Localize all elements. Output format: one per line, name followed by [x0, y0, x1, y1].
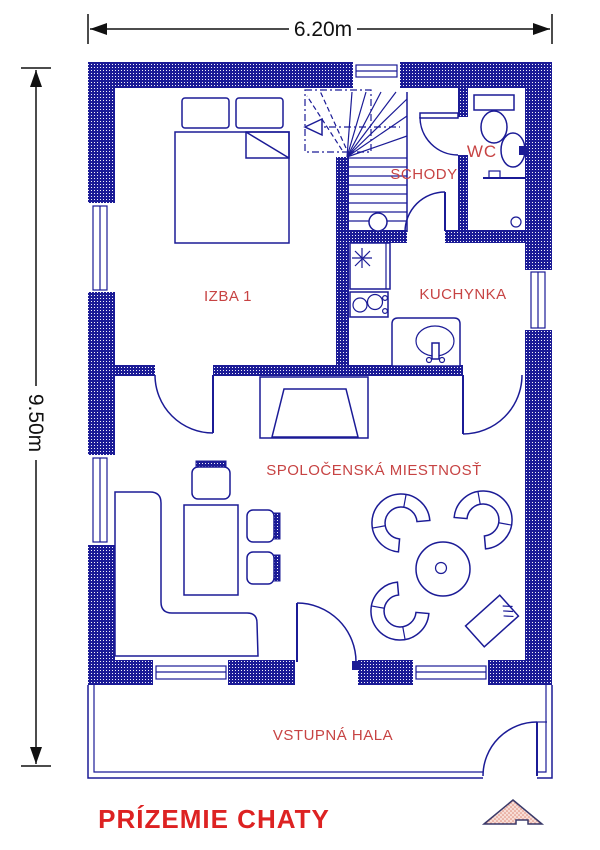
window-bottom-left	[153, 660, 228, 685]
dimension-top: 6.20m	[88, 14, 552, 44]
wall-bottom-1	[88, 660, 153, 685]
floor-drain	[511, 217, 521, 227]
pillow-right	[236, 98, 283, 128]
window-left-bedroom	[88, 203, 115, 292]
chair-right-2	[247, 552, 280, 584]
room-label-entry-hall: VSTUPNÁ HALA	[273, 727, 393, 744]
fireplace	[260, 377, 368, 438]
floor-plan-canvas: 6.20m 9.50m	[0, 0, 600, 845]
armchair-northeast	[449, 479, 524, 554]
window-right-kitchen	[525, 270, 552, 330]
room-label-kitchen: KUCHYNKA	[419, 286, 506, 303]
wall-bottom-3	[358, 660, 413, 685]
north-triangle-icon	[484, 800, 542, 824]
kitchen-sink-counter	[392, 318, 460, 366]
wall-middle-left	[115, 365, 155, 376]
toilet-tank	[474, 95, 514, 110]
kitchen-fixtures	[350, 243, 460, 366]
dining-corner	[115, 461, 280, 656]
wc-sink-tap	[519, 146, 528, 155]
door-wc	[420, 113, 458, 155]
fridge	[350, 243, 390, 289]
door-stair-corridor	[405, 192, 445, 232]
arrow-down-icon	[30, 747, 42, 764]
arrow-right-icon	[533, 23, 550, 35]
room-label-wc: WC	[467, 142, 497, 161]
arrow-up-icon	[30, 70, 42, 87]
plan-title: PRÍZEMIE CHATY	[98, 804, 330, 834]
wc-fixtures	[474, 95, 528, 227]
kitchen-sink-tap	[432, 343, 439, 359]
window-left-living	[88, 455, 115, 545]
dimension-left: 9.50m	[21, 68, 51, 766]
arrow-left-icon	[90, 23, 107, 35]
wall-left-2	[88, 292, 115, 455]
door-bedroom	[155, 375, 213, 433]
window-bottom-right	[413, 660, 488, 685]
double-bed	[175, 132, 289, 243]
stairs	[305, 90, 407, 232]
wall-wc-lower	[458, 155, 468, 230]
stairs-newel-post	[369, 213, 387, 231]
room-label-stairs: SCHODY	[390, 166, 457, 183]
floor-plan-page: 6.20m 9.50m	[0, 0, 600, 845]
window-top	[353, 62, 400, 88]
wall-bedroom-kitchen	[336, 157, 349, 365]
room-label-bedroom: IZBA 1	[204, 288, 252, 305]
chair-top	[192, 461, 230, 499]
room-label-living-room: SPOLOČENSKÁ MIESTNOSŤ	[266, 462, 482, 479]
wall-bottom-2	[228, 660, 295, 685]
stairs-winders	[347, 92, 407, 157]
bedroom-furniture	[175, 98, 289, 243]
lounge-group	[359, 479, 524, 652]
pillow-left	[182, 98, 229, 128]
round-coffee-table	[416, 542, 470, 596]
side-table	[466, 594, 520, 647]
dimension-height-label: 9.50m	[24, 394, 47, 452]
wall-wc-bottom	[445, 230, 525, 243]
wall-left-3	[88, 545, 115, 660]
wall-wc-upper	[458, 88, 468, 117]
door-living-hall	[297, 603, 361, 670]
wall-left-1	[88, 88, 115, 203]
chair-right-1	[247, 510, 280, 542]
dimension-width-label: 6.20m	[294, 18, 352, 41]
stove	[350, 292, 388, 317]
stairs-direction-arrow-icon	[305, 119, 322, 135]
armchair-southwest	[359, 577, 434, 652]
wall-understairs	[338, 230, 407, 243]
wall-right-2	[525, 330, 552, 660]
wall-top-right	[400, 62, 552, 88]
door-kitchen-living	[463, 375, 522, 434]
wall-right-1	[525, 88, 552, 270]
entrance-door	[483, 722, 547, 776]
armchair-northwest	[360, 482, 435, 557]
wall-top-left	[88, 62, 353, 88]
dining-table	[184, 505, 238, 595]
toilet-bowl	[481, 111, 507, 143]
wall-bottom-4	[488, 660, 552, 685]
